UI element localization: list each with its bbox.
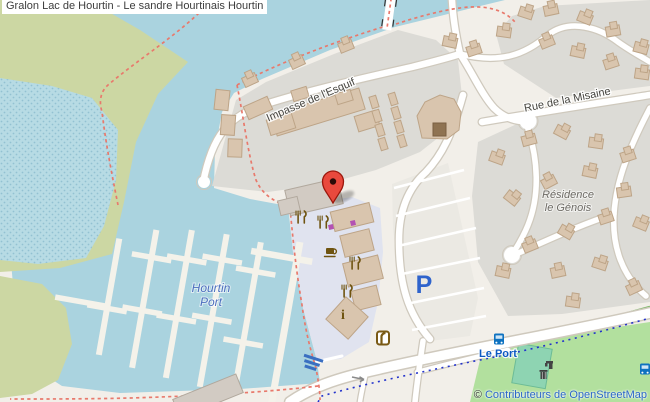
marina-label-line2: Port [200,295,223,309]
copyright-symbol: © [474,389,482,401]
page-title: Gralon Lac de Hourtin - Le sandre Hourti… [2,0,267,14]
info-icon: i [341,308,345,323]
bus-stop-icon [494,334,504,345]
parking-label: P [416,271,433,299]
marker-pin-dot [330,178,336,184]
waste-basket-icon [540,370,548,379]
residence-label-line1: Résidence [542,189,594,201]
attribution-link[interactable]: Contributeurs de OpenStreetMap [485,389,647,401]
map-attribution: © Contributeurs de OpenStreetMap [474,389,647,401]
map-canvas[interactable]: i Impasse de l'Esquif Rue de la [0,0,650,402]
residence-label-line2: le Génois [545,202,592,214]
map-screenshot: i Impasse de l'Esquif Rue de la [0,0,650,402]
bus-stop-label: Le Port [479,348,517,360]
bus-stop-icon [640,364,650,375]
parking-area [392,163,478,341]
storefront-icon [377,332,389,345]
marina-label-line1: Hourtin [192,281,231,295]
